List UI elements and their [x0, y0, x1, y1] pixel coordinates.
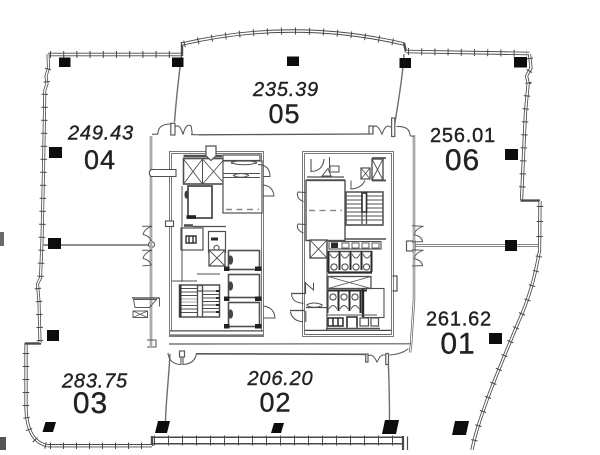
svg-text:03: 03 — [73, 387, 108, 420]
svg-text:235.39: 235.39 — [252, 79, 319, 101]
svg-text:02: 02 — [259, 388, 291, 418]
svg-text:05: 05 — [268, 99, 300, 129]
svg-text:06: 06 — [445, 144, 480, 177]
svg-text:04: 04 — [84, 145, 116, 175]
svg-text:249.43: 249.43 — [67, 123, 134, 145]
svg-text:01: 01 — [440, 328, 475, 361]
